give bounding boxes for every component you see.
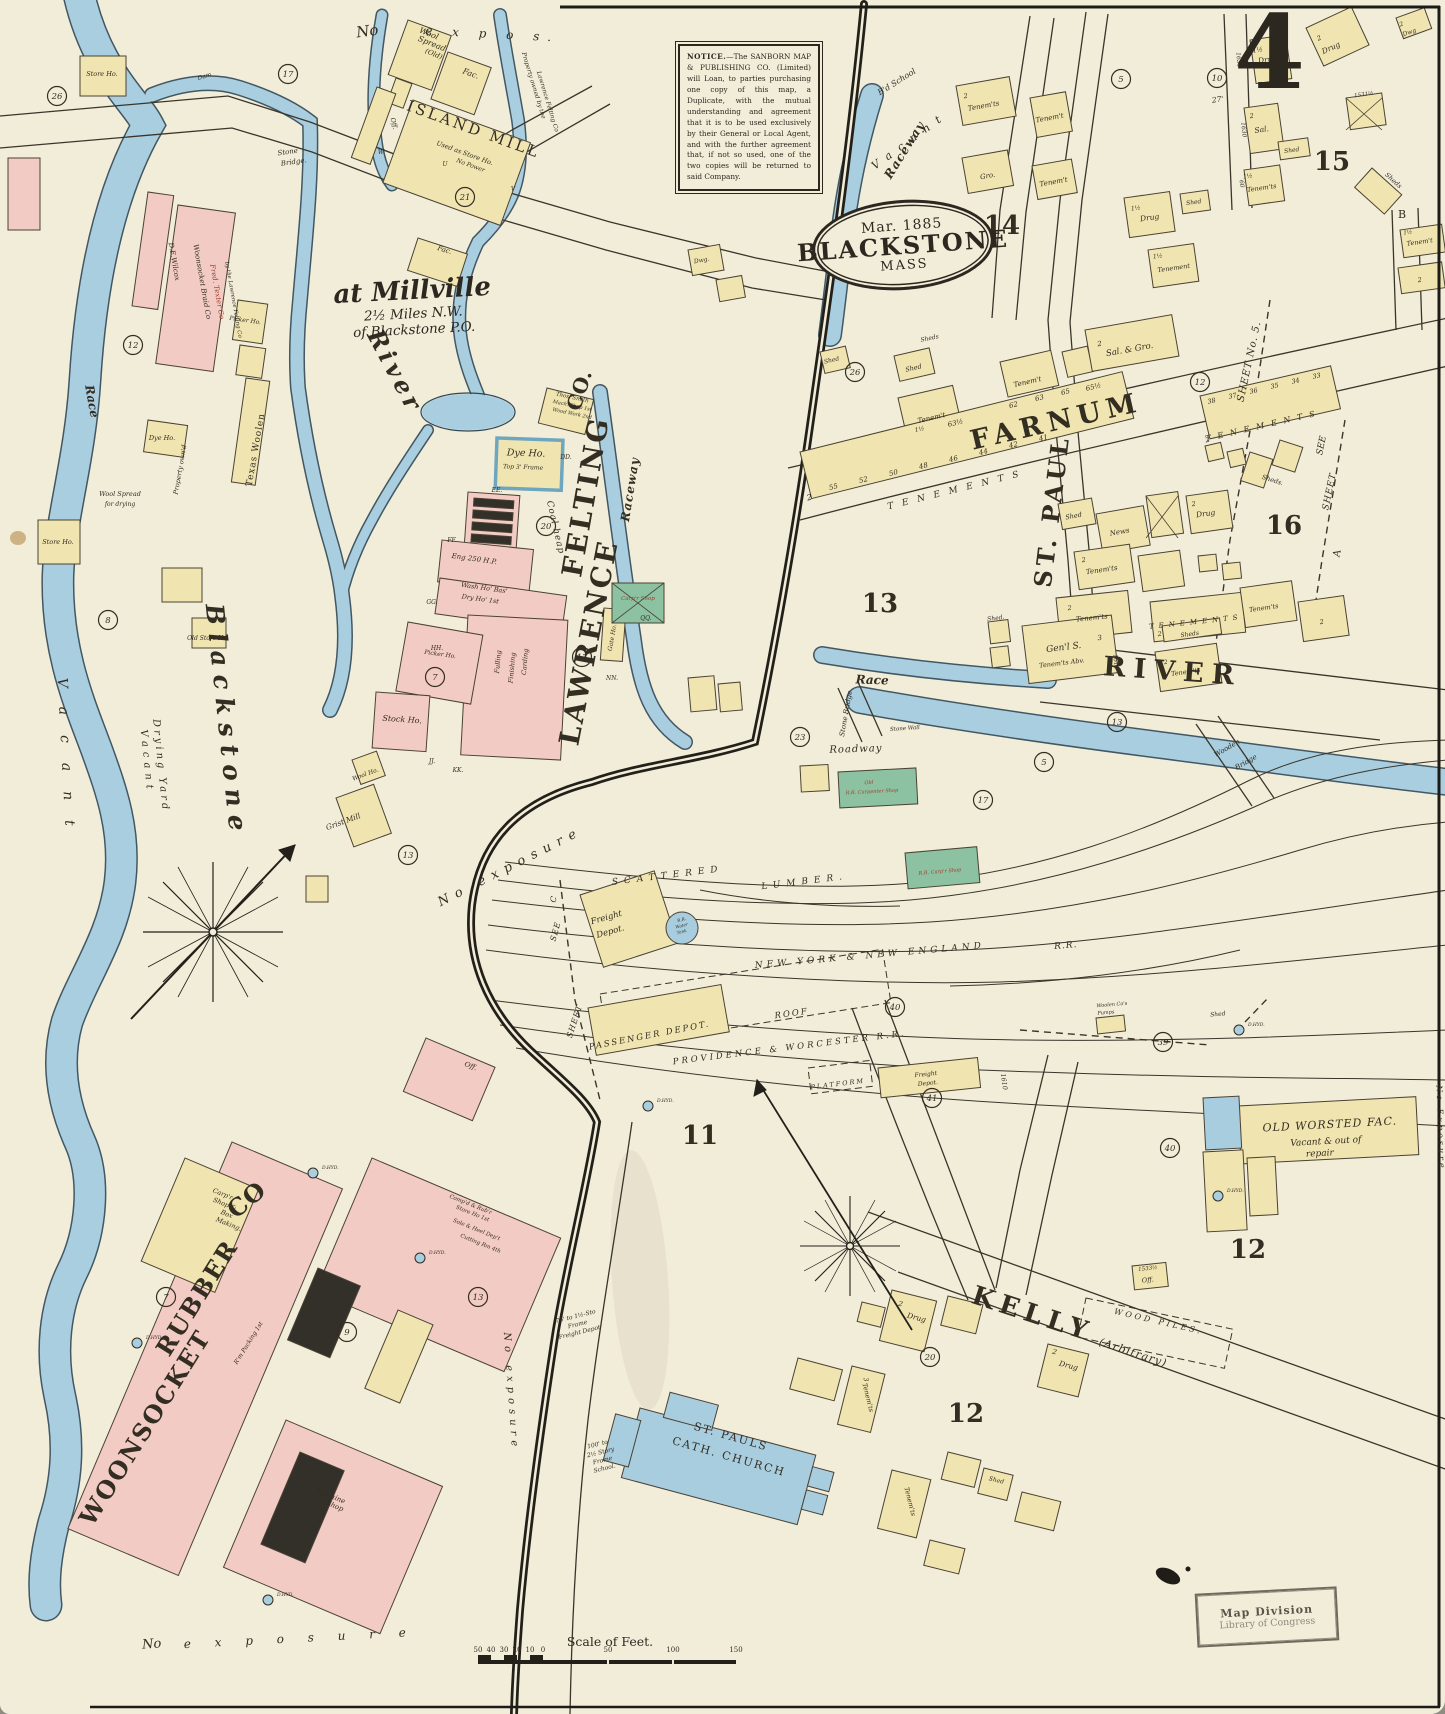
building — [306, 876, 328, 902]
publisher-notice: NOTICE.—The SANBORN MAP & PUBLISHING CO.… — [678, 44, 820, 191]
map-label: Dye Ho. — [506, 447, 546, 459]
map-label: EE. — [491, 487, 503, 494]
map-label: Store Ho. — [42, 538, 74, 546]
building — [990, 646, 1010, 668]
notice-body: —The SANBORN MAP & PUBLISHING CO. (Limit… — [687, 52, 811, 181]
map-label: Roadway — [828, 743, 882, 756]
map-label: 13 — [862, 589, 898, 619]
building — [688, 676, 717, 712]
hydrant-dot — [1213, 1191, 1223, 1201]
building — [1203, 1096, 1242, 1150]
sanborn-map-sheet: 5040302010050100150 FARNUMST. PAULRIVERK… — [0, 0, 1445, 1714]
building-crosshatch — [1346, 93, 1386, 130]
reference-marker-number: 7 — [163, 1293, 169, 1303]
map-label: 2 — [1066, 604, 1072, 612]
reference-marker-number: 13 — [403, 851, 414, 861]
building-green-shop — [612, 583, 664, 623]
location-note: at Millville 2½ Miles N.W. of Blackstone… — [297, 270, 530, 344]
map-canvas: 5040302010050100150 FARNUMST. PAULRIVERK… — [0, 0, 1445, 1714]
reference-marker-number: 12 — [1195, 378, 1206, 388]
scale-tick-label: 40 — [487, 1646, 496, 1654]
map-label: No — [354, 21, 379, 42]
map-label: Dye Ho. — [148, 434, 175, 442]
reference-marker-number: 5 — [1041, 758, 1046, 768]
reference-marker-number: 17 — [577, 653, 588, 663]
reference-marker-number: 17 — [978, 796, 989, 806]
hydrant-label: D.HYD. — [321, 1165, 339, 1171]
reference-marker-number: 23 — [794, 733, 806, 743]
map-label: Carp'r Shop — [621, 596, 655, 602]
building — [718, 682, 742, 712]
map-label: No — [141, 1636, 162, 1652]
building — [1247, 1157, 1278, 1216]
map-label: GG. — [426, 599, 437, 606]
hydrant-label: D.HYD. — [656, 1098, 674, 1104]
scale-tick-label: 10 — [526, 1646, 535, 1654]
building — [1222, 562, 1242, 580]
sheet-number: 4 — [1234, 2, 1305, 104]
reference-marker-number: 40 — [1164, 1144, 1176, 1154]
map-label: 60 — [1238, 180, 1246, 189]
scale-tick-label: 20 — [513, 1646, 522, 1654]
reference-marker-number: 7 — [432, 673, 438, 683]
reference-marker-number: 20 — [924, 1353, 936, 1363]
building — [988, 620, 1011, 644]
reference-marker-number: 40 — [889, 1003, 901, 1013]
map-label: repair — [1306, 1148, 1335, 1159]
scale-tick-label: 30 — [500, 1646, 509, 1654]
reference-marker-number: 13 — [473, 1293, 484, 1303]
map-label: 16 — [1266, 511, 1302, 541]
map-label: 1½ — [1403, 228, 1413, 236]
reference-marker-number: 5 — [1118, 75, 1123, 85]
building — [716, 275, 745, 301]
reference-marker-number: 10 — [1212, 74, 1223, 84]
notice-heading: NOTICE. — [687, 52, 726, 61]
reference-marker-number: 41 — [926, 1094, 938, 1104]
building — [8, 158, 40, 230]
scale-tick-label: 150 — [729, 1646, 742, 1654]
map-label: Race — [854, 672, 889, 687]
map-label: V — [511, 186, 516, 193]
map-label: 11 — [682, 1121, 718, 1151]
building — [1096, 1015, 1126, 1034]
reference-marker-number: 12 — [128, 341, 139, 351]
map-label: 2 — [1156, 630, 1162, 638]
map-state: MASS — [880, 256, 929, 274]
scale-tick-label: 50 — [474, 1646, 483, 1654]
map-label: Wool Spread — [99, 490, 141, 498]
map-label: 1½ — [1131, 204, 1142, 212]
map-label: Off. — [1141, 1275, 1154, 1284]
scale-title: Scale of Feet. — [540, 1634, 680, 1649]
reference-marker-number: 26 — [849, 368, 861, 378]
paper-stain — [10, 531, 26, 545]
hydrant-label: D.HYD. — [1226, 1188, 1244, 1194]
building — [396, 622, 483, 704]
map-label: 1½ — [1243, 172, 1254, 180]
hydrant-label: D.HYD. — [145, 1335, 163, 1341]
map-label: JJ. — [427, 758, 435, 765]
ink-blot — [1186, 1567, 1191, 1572]
reference-marker-number: 39 — [1158, 1038, 1169, 1048]
map-label: Old Store Ho. — [187, 635, 229, 642]
hydrant-dot — [308, 1168, 318, 1178]
reference-marker-number: 8 — [105, 616, 111, 626]
hydrant-dot — [415, 1253, 425, 1263]
map-label: Store Ho. — [86, 70, 118, 78]
building — [1138, 550, 1185, 591]
hydrant-dot — [263, 1595, 273, 1605]
map-label: Top 3' Frame — [503, 463, 544, 471]
map-label: B — [1398, 208, 1406, 221]
reference-marker-number: 21 — [459, 193, 471, 203]
reference-marker-number: 26 — [51, 92, 63, 102]
building — [800, 765, 829, 792]
map-label: QQ. — [640, 615, 652, 622]
map-label: 27' — [1210, 94, 1224, 105]
reference-marker-number: 17 — [283, 70, 294, 80]
map-label: W — [378, 149, 385, 156]
map-label: 12 — [1230, 1235, 1266, 1265]
map-label: Old — [864, 780, 873, 786]
map-label: for drying — [104, 501, 135, 508]
hydrant-label: D.HYD. — [1247, 1022, 1265, 1028]
reference-marker-number: 9 — [344, 1328, 350, 1338]
hydrant-dot — [643, 1101, 653, 1111]
library-stamp: Map Division Library of Congress — [1195, 1586, 1340, 1647]
reference-marker-number: 20 — [540, 522, 552, 532]
building — [236, 345, 266, 378]
map-label: Shed — [1210, 1010, 1226, 1018]
building — [1205, 442, 1224, 461]
map-label: KK. — [452, 767, 464, 774]
map-label: DD. — [559, 454, 571, 461]
building — [1198, 554, 1218, 572]
hydrant-label: D.HYD. — [428, 1250, 446, 1256]
map-label: HH. — [430, 645, 443, 652]
map-label: R.R. — [1053, 940, 1078, 952]
map-label: FF. — [446, 537, 456, 544]
building-crosshatch — [1146, 492, 1184, 538]
building — [162, 568, 202, 602]
map-label: NN. — [605, 675, 618, 682]
map-label: 1½ — [1153, 252, 1164, 260]
hydrant-dot — [1234, 1025, 1244, 1035]
map-label: 12 — [948, 1399, 984, 1429]
hydrant-label: D.HYD. — [276, 1592, 294, 1598]
reference-marker-number: 13 — [1112, 718, 1123, 728]
building — [1227, 448, 1246, 467]
hydrant-dot — [132, 1338, 142, 1348]
map-label: 15 — [1314, 147, 1350, 177]
building — [1298, 596, 1349, 642]
